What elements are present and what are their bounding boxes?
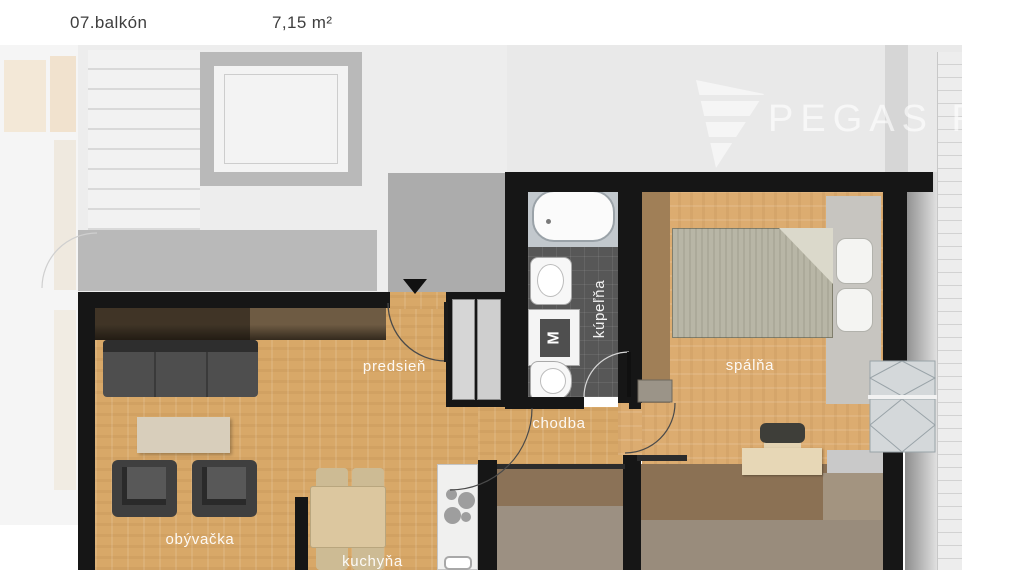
neighbour-room-faint [54,310,76,490]
toilet-bowl [540,368,566,394]
sofa-backrest [103,340,258,352]
wall-right-lower [883,452,903,570]
wall-right-upper [883,172,907,362]
stove-burner [446,489,457,500]
room-label-hallway: predsieň [352,358,437,375]
bottom-right-room-floor [641,520,883,570]
closet-sliding-door [452,299,475,400]
armchair [112,460,177,517]
wall-bathroom-bottom [505,397,584,409]
armchair [192,460,257,517]
balcony-label: 07.balkón [70,13,147,33]
page-margin-right [962,0,1011,570]
dining-table [310,486,386,548]
wall-shadow-strip [905,172,937,570]
wall-bathroom-left [505,172,528,409]
stove-burner [444,507,461,524]
pillow [836,238,873,284]
stove-burner [458,492,475,509]
wall-bedroom-left-lower [623,455,641,570]
neighbour-room-faint [4,60,46,132]
entrance-door-threshold [388,292,452,309]
sideboard-shadow [92,306,250,340]
wall-top-left [78,292,390,308]
stove-burner [461,512,471,522]
armchair-cushion [122,467,166,505]
staircase [88,50,200,232]
coffee-table [137,417,230,453]
neighbour-room-faint [54,140,76,290]
elevator-shaft [200,52,362,186]
sofa-cushion-divider [206,352,208,397]
bathtub-drain [546,219,551,224]
room-label-corridor: chodba [518,415,600,432]
faded-wall-block [388,173,507,293]
wall-left [78,292,95,570]
elevator-cabin-outline [224,74,338,164]
desk [742,448,822,475]
closet-sliding-door [477,299,501,400]
floor-plan: 07.balkón 7,15 m² PEGAS REAL [0,0,1011,570]
wall-bedroom-left [618,172,642,403]
washing-machine-label: M [546,331,564,344]
bathtub [532,190,615,242]
wall-top [505,172,933,192]
washing-machine-drum: M [540,319,570,357]
sofa-cushion-divider [154,352,156,397]
balcony-area-value: 7,15 m² [272,13,332,33]
pillow [836,288,873,332]
room-label-kitchen: kuchyňa [330,553,415,570]
window-sill [827,450,883,473]
room-label-bedroom: spálňa [715,357,785,374]
wall-segment-thin [637,455,687,461]
room-label-bathroom: kúpeľňa [591,267,609,351]
faded-wall-band [78,230,377,291]
washbasin-bowl [537,264,564,297]
armchair-cushion [202,467,246,505]
kitchen-sink [444,556,472,570]
header-bar [0,0,1011,45]
desk-chair [760,423,805,443]
wall-kitchen-right [478,460,497,570]
bedroom-door-threshold [618,403,642,455]
bottom-right-light-band [823,473,883,520]
room-label-living: obývačka [140,531,260,548]
bedroom-wardrobe-strip [642,192,670,403]
wall-segment-thin [497,464,625,469]
wall-kitchen-stub [295,497,308,570]
bottom-left-wardrobe-band [497,469,625,506]
neighbour-room-faint [50,56,76,132]
bottom-left-room-floor [497,506,625,570]
